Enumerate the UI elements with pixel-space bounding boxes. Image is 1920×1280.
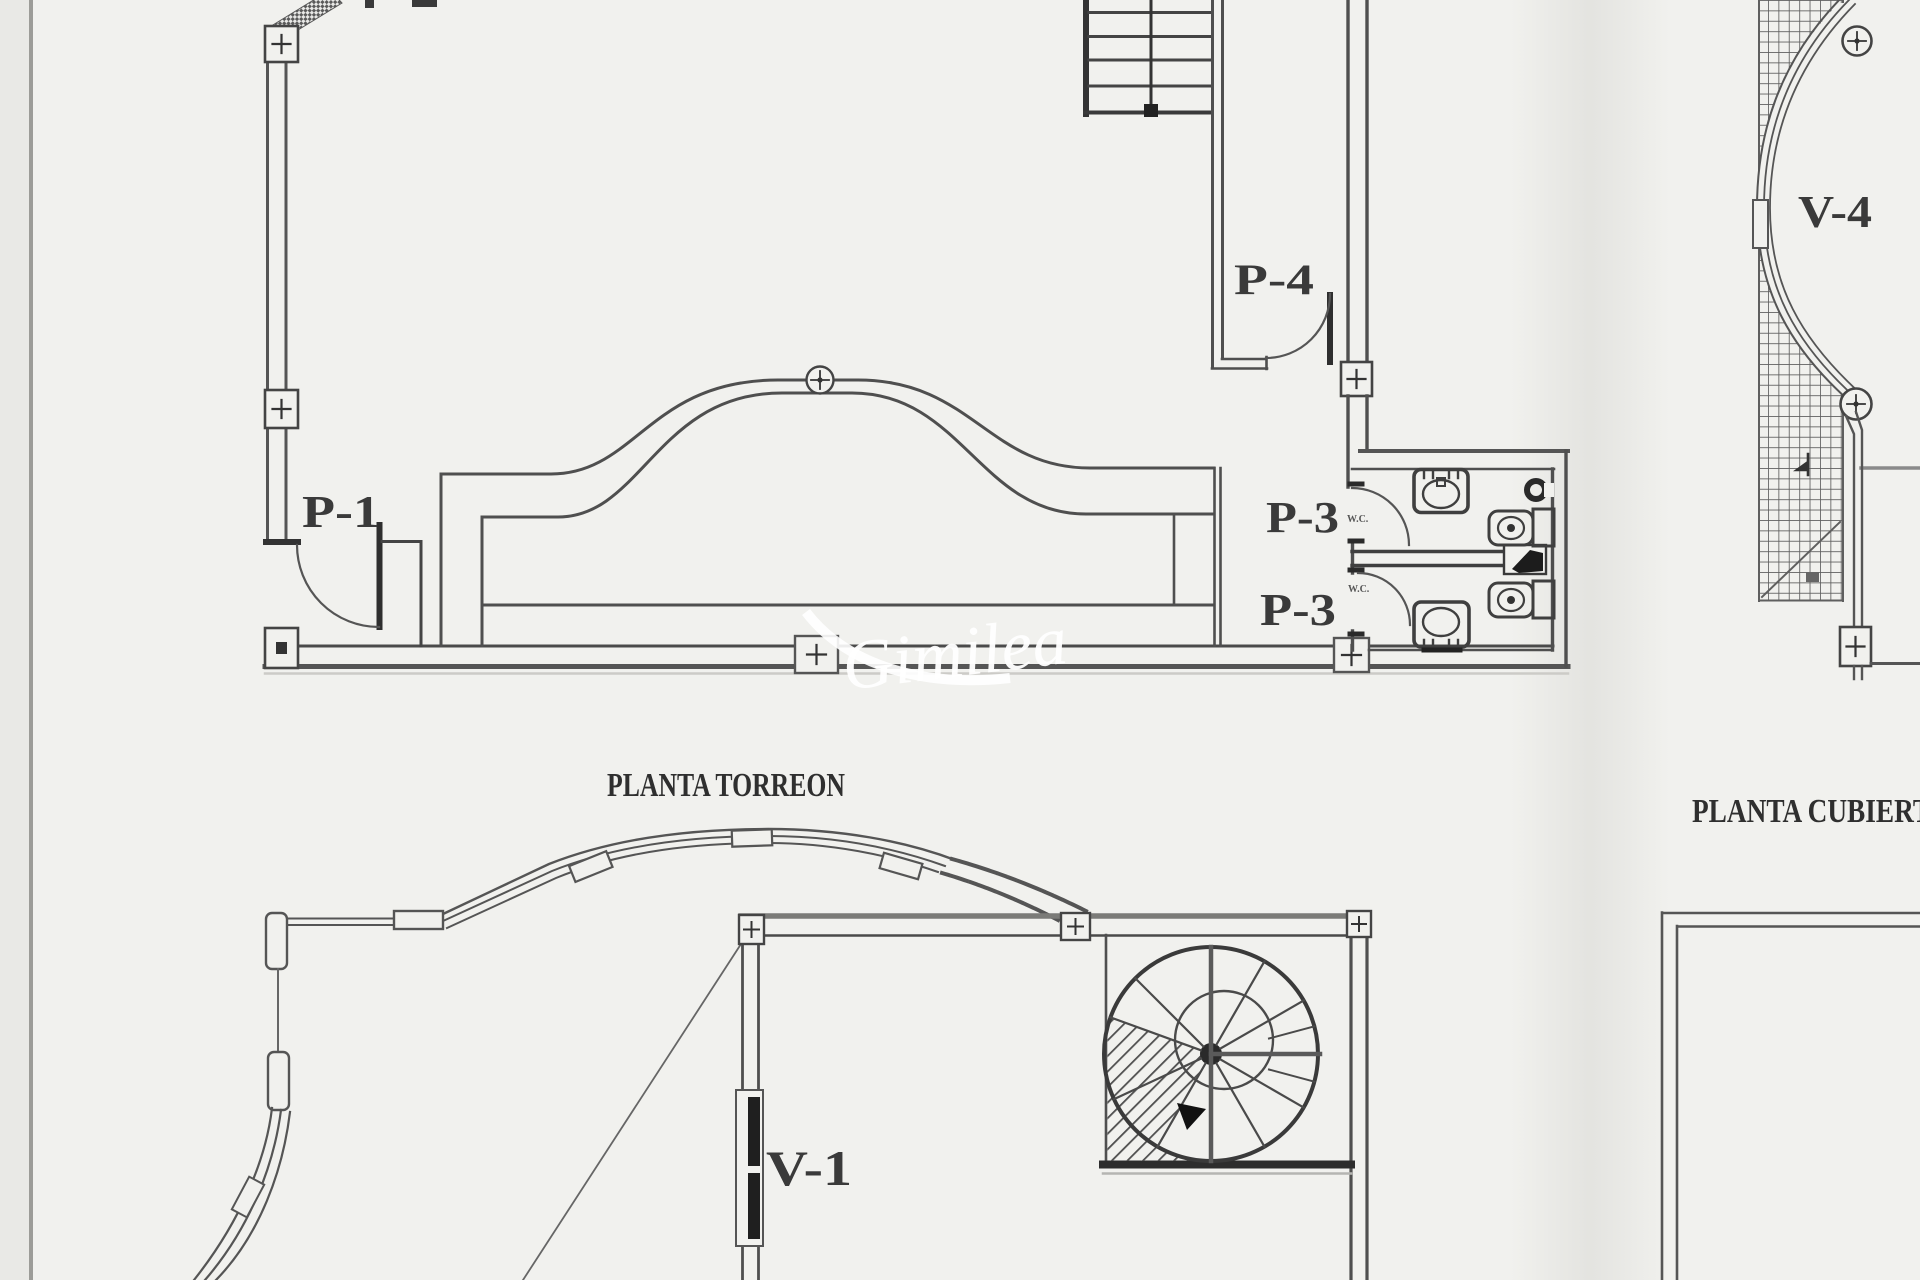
svg-text:P-3: P-3 bbox=[1260, 585, 1336, 635]
svg-text:P-4: P-4 bbox=[1234, 257, 1314, 304]
svg-text:V-1: V-1 bbox=[766, 1140, 852, 1196]
svg-text:P-3: P-3 bbox=[1266, 493, 1339, 542]
svg-text:W.C.: W.C. bbox=[1347, 514, 1369, 525]
svg-text:PLANTA TORREON: PLANTA TORREON bbox=[607, 767, 845, 804]
svg-text:PLANTA CUBIERTAS: PLANTA CUBIERTAS bbox=[1692, 793, 1920, 830]
svg-text:W.C.: W.C. bbox=[1348, 584, 1370, 595]
svg-text:V-4: V-4 bbox=[1798, 187, 1872, 237]
svg-text:P-1: P-1 bbox=[302, 486, 380, 537]
